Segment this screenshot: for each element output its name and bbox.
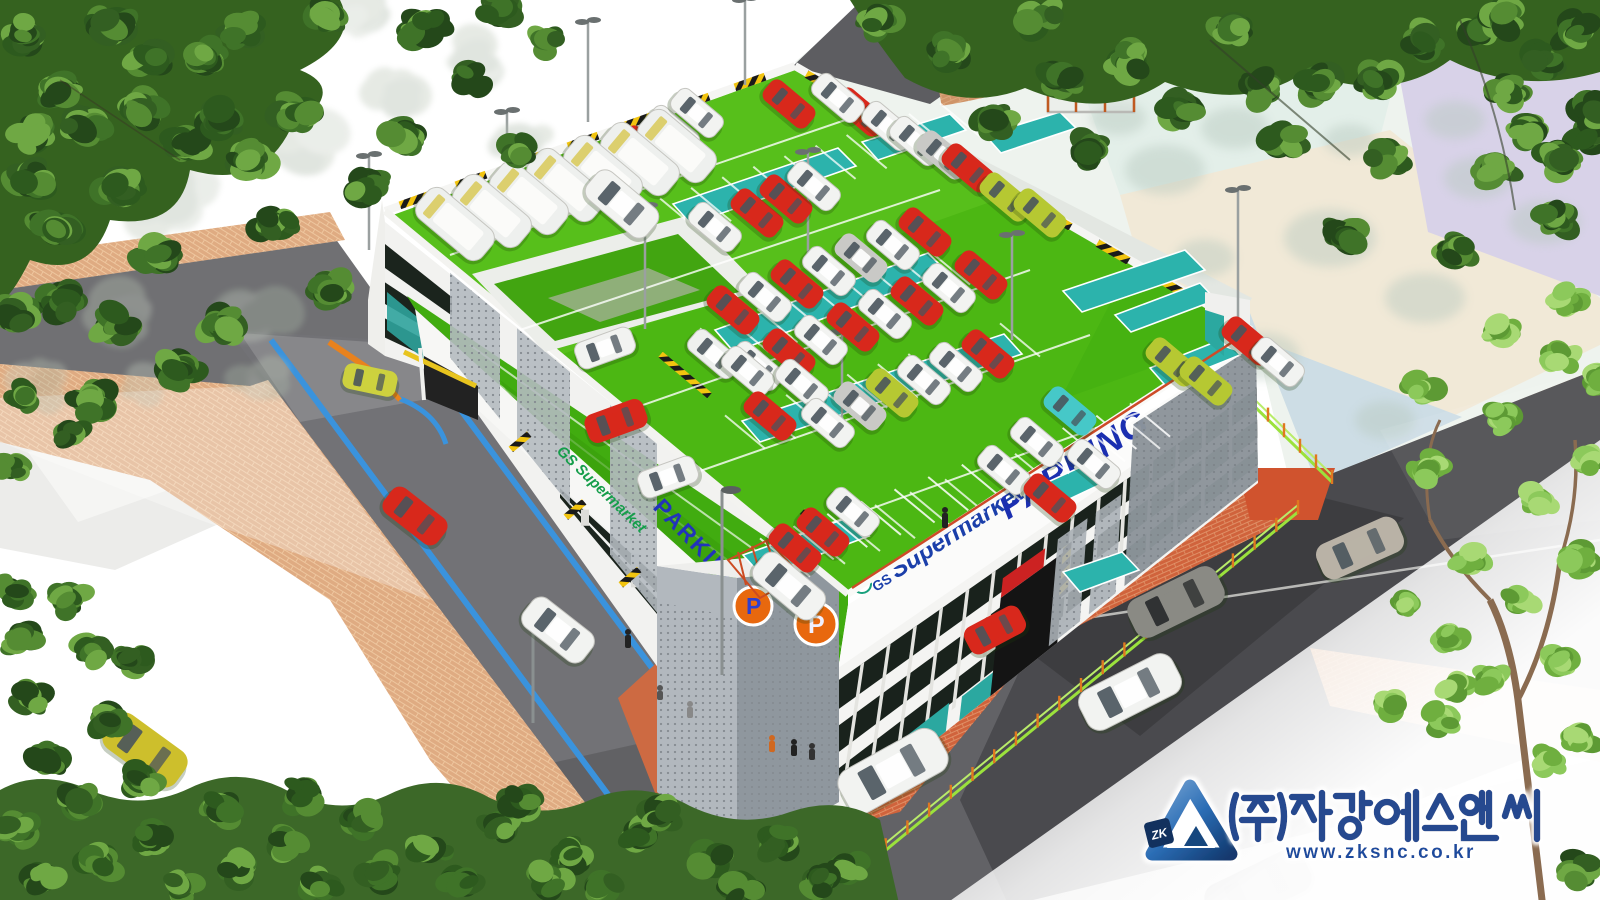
svg-text:www.zksnc.co.kr: www.zksnc.co.kr [1285,842,1476,863]
